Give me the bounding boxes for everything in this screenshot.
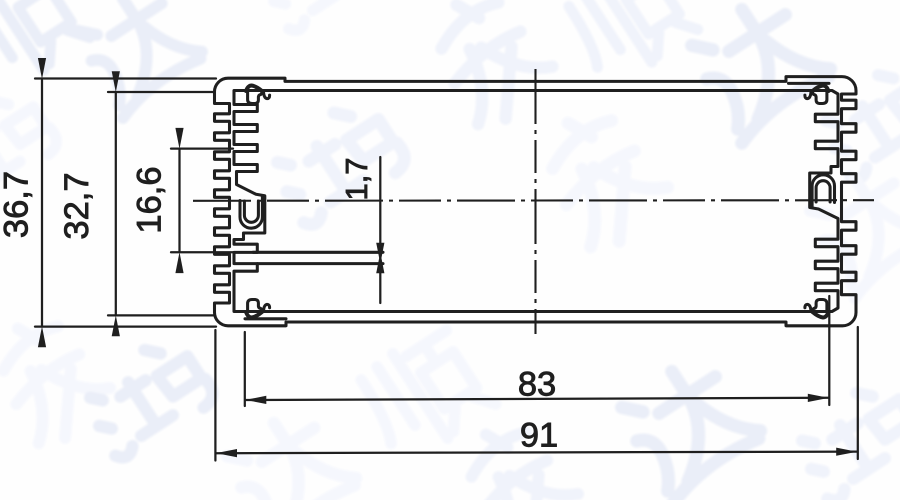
svg-text:36,7: 36,7 <box>0 171 36 238</box>
svg-text:32,7: 32,7 <box>58 172 96 239</box>
svg-text:16,6: 16,6 <box>131 166 169 233</box>
svg-text:83: 83 <box>518 366 556 404</box>
svg-text:1,7: 1,7 <box>339 157 374 200</box>
svg-text:91: 91 <box>520 417 558 455</box>
